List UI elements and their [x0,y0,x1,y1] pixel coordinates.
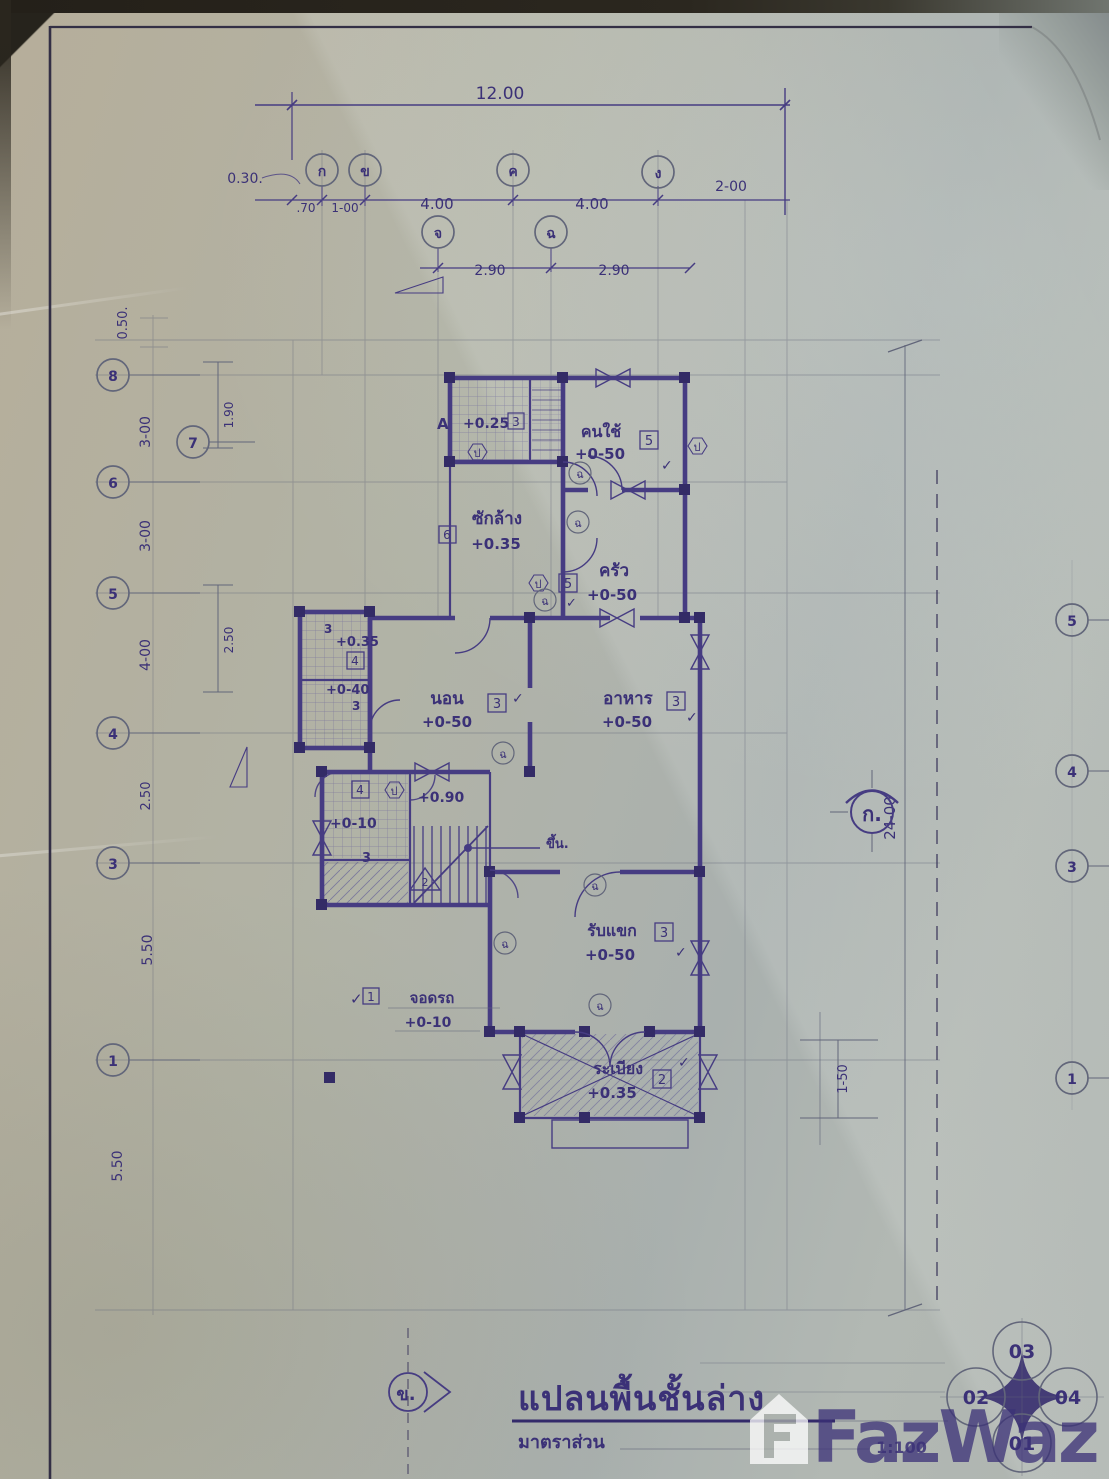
stair-section: 2 [422,876,429,889]
dim-seg-200: 2-00 [715,179,747,195]
sheet-border [50,26,1100,1479]
entry-level: +0-10 [330,816,377,832]
check-mark: ✓ [350,990,363,1008]
bedroom-tag: 3 [493,697,501,712]
living-tag: 3 [660,926,668,941]
bath-left-tag-b: 4 [351,654,359,668]
dim-left-250: 2.50 [139,782,154,811]
dim-left-300b: 3-00 [138,520,154,552]
door-tag: ฉ [576,468,584,481]
door-tag: ฉ [499,748,507,761]
living-name: รับแขก [587,921,637,940]
check-mark: ✓ [675,945,687,961]
carport-name: จอดรถ [410,989,455,1007]
floor-plan-drawing: 12.00 0.30. .70 1-00 4.00 4.00 2-00 2.90… [0,0,1109,1479]
room-labels: A +0.25 3 ป คนใช้ +0-50 5 ✓ ป 6 ซักล้าง … [324,413,707,1102]
check-mark: ✓ [661,458,673,474]
door-tag: ฉ [591,880,599,893]
left-dimensions: 0.50. 3-00 3-00 4-00 2.50 5.50 5.50 1.90… [110,306,247,1181]
grid-bubbles-right: 5 4 3 1 [1056,604,1109,1094]
grid-bubble-label: 1 [1067,1072,1077,1088]
dim-seg-70: .70 [296,201,315,215]
door-tag: ฉ [541,595,549,608]
grid-bubble-label: จ [434,226,442,242]
porch-name: ระเบียง [593,1059,643,1078]
carport-tag: 1 [367,990,375,1004]
watermark: FazWaz [750,1394,1097,1479]
bath-top-ref: A [437,415,449,433]
grid-bubble-label: 3 [1067,860,1077,876]
dim-seg-400a: 4.00 [420,195,453,213]
marker-ko-label: ก. [862,802,882,826]
laundry-tag: 6 [443,528,451,542]
stair-up-label: ขึ้น. [546,833,569,852]
dining-tag: 3 [672,695,680,710]
section-marker-label: ข. [396,1384,415,1405]
bedroom-level: +0-50 [422,713,472,731]
watermark-text: FazWaz [812,1395,1097,1479]
dim-off-250: 2.50 [222,627,236,654]
wc-level: +0.90 [418,790,465,806]
dim-right-150: 1-50 [836,1064,851,1094]
dim-left-550a: 5.50 [140,934,156,965]
window-symbols [313,369,717,1089]
laundry-name: ซักล้าง [472,509,522,529]
grid-bubble-label: 4 [108,727,118,743]
grid-bubbles-top: ก ข ค ง จ ฉ [306,154,674,272]
kitchen-level: +0-50 [587,586,637,604]
maid-level: +0-50 [575,445,625,463]
dim-seg-100: 1-00 [331,201,358,215]
laundry-level: +0.35 [471,535,521,553]
bath-left-tag-c: 3 [352,699,360,713]
living-level: +0-50 [585,946,635,964]
porch-tag: 2 [658,1073,666,1088]
stair [414,826,540,903]
grid-bubble-label: ข [360,164,370,180]
grid-bubble-label: 3 [108,857,118,873]
grid-bubbles-left: 8 7 6 5 4 3 1 [97,359,255,1076]
maid-tag: 5 [645,434,653,449]
bath-top-tag: 3 [512,415,520,429]
grid-bubble-label: 7 [188,436,198,452]
bath-left-tag-a: 3 [324,622,332,636]
stair-tag: 3 [362,851,371,866]
pencil-grid [95,150,1072,1315]
bath-left-level-a: +0.35 [336,635,379,650]
scale-label: มาตราส่วน [518,1432,606,1453]
grid-bubble-label: ง [655,166,662,182]
carport-level: +0-10 [405,1015,452,1031]
property-dashed-line [408,470,937,1478]
grid-bubble-label: ค [508,164,517,180]
wc-tag: 4 [356,783,364,797]
check-mark: ✓ [686,710,698,726]
kitchen-name: ครัว [599,561,629,581]
kitchen-tag: 5 [564,577,572,592]
dim-left-550b: 5.50 [110,1150,126,1181]
dim-top-total: 12.00 [476,84,525,104]
section-marker-bottom: ข. [389,1372,450,1412]
dim-off-190: 1.90 [222,402,236,429]
right-dimensions: 24-00 1-50 [800,340,922,1316]
maid-name: คนใช้ [581,422,621,441]
top-dimensions: 12.00 0.30. .70 1-00 4.00 4.00 2-00 2.90… [227,84,790,293]
grid-bubble-label: 5 [1067,614,1077,630]
window-tag: ป [391,785,398,798]
grid-bubble-label: 8 [108,369,118,385]
dim-left-400: 4-00 [138,639,154,671]
bedroom-name: นอน [430,689,464,709]
plan-title: แปลนพื้นชั้นล่าง [518,1373,765,1419]
check-mark: ✓ [566,596,577,611]
door-tag: ฉ [501,938,509,951]
dim-left-050: 0.50. [116,306,131,339]
dining-name: อาหาร [603,689,654,709]
check-mark: ✓ [512,691,524,707]
dim-offset-030: 0.30. [227,171,263,187]
porch-level: +0.35 [587,1084,637,1102]
dim-seg-290a: 2.90 [474,263,505,279]
door-tag: ฉ [596,1000,604,1013]
grid-bubble-label: 5 [108,587,118,603]
door-tag: ฉ [574,517,582,530]
bath-left-level-b: +0-40 [326,683,369,698]
check-mark: ✓ [678,1055,690,1071]
dim-left-300a: 3-00 [138,416,154,448]
grid-bubble-label: 1 [108,1054,118,1070]
dim-seg-290b: 2.90 [598,263,629,279]
dim-seg-400b: 4.00 [575,195,608,213]
dining-level: +0-50 [602,713,652,731]
grid-bubble-label: 6 [108,476,118,492]
grid-bubble-label: 4 [1067,765,1077,781]
window-tag: ป [535,578,542,591]
sheet-circle-03: 03 [1009,1341,1035,1363]
window-tag: ป [694,441,701,454]
blueprint-photo: 12.00 0.30. .70 1-00 4.00 4.00 2-00 2.90… [0,0,1109,1479]
grid-bubble-label: ก [318,164,326,180]
grid-bubble-label: ฉ [546,226,556,242]
bath-top-level: +0.25 [463,416,509,432]
window-tag: ป [474,447,481,460]
